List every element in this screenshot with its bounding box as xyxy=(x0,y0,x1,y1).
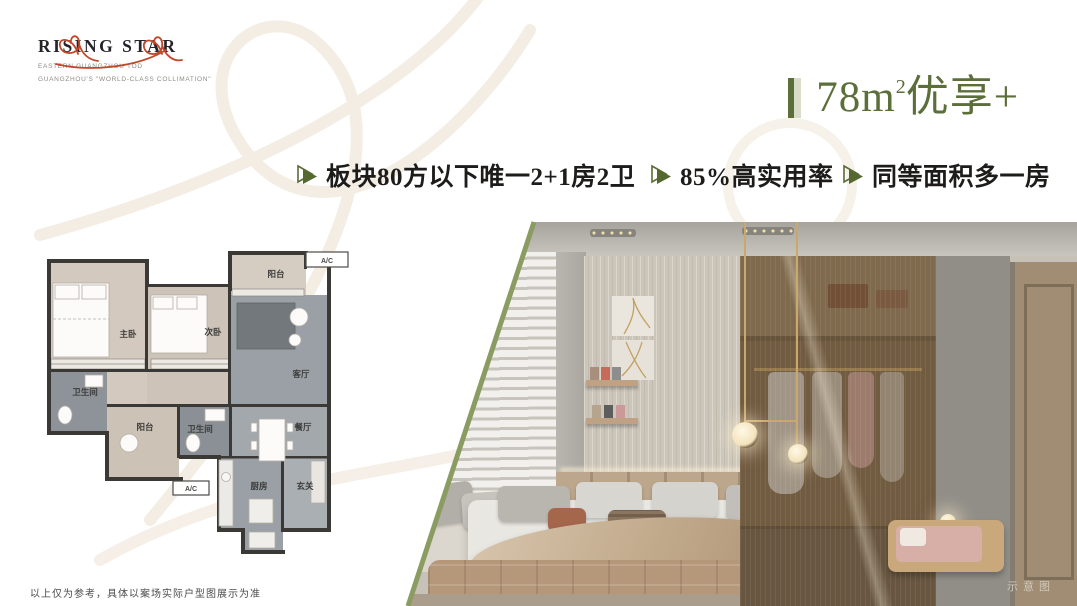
crib-pillow xyxy=(900,528,926,546)
ac-box-bottom-label: A/C xyxy=(185,486,197,493)
disclaimer-text: 以上仅为参考，具体以案场实际户型图展示为准 xyxy=(30,585,261,600)
book xyxy=(592,405,601,418)
headline-suffix: 优享+ xyxy=(906,74,1019,121)
brand-logo-title: RISING STAR xyxy=(38,36,258,57)
brand-logo-subtitle-2: GUANGZHOU'S "WORLD-CLASS COLLIMATION" xyxy=(38,76,258,83)
chevron-right-icon xyxy=(843,163,865,187)
chevron-right-icon xyxy=(297,163,319,187)
headline: 78m2优享+ xyxy=(788,76,1019,119)
book xyxy=(616,405,625,418)
photo-caption: 示意图 xyxy=(1007,578,1055,594)
room-label-balcony-top: 阳台 xyxy=(267,269,285,279)
headline-area-sup: 2 xyxy=(896,76,906,98)
bullet-label: 同等面积多一房 xyxy=(872,157,1051,193)
book xyxy=(601,367,610,380)
bullet-item-extra-room: 同等面积多一房 xyxy=(843,157,1051,193)
pendant-arm-icon xyxy=(744,420,798,422)
wall-shelf xyxy=(586,418,638,424)
floorplan-balcony-bottom-floor xyxy=(107,406,179,478)
room-label-dining: 餐厅 xyxy=(293,422,312,432)
room-label-living: 客厅 xyxy=(291,369,310,379)
room-label-bath-left: 卫生间 xyxy=(72,387,98,397)
room-label-balcony-bottom: 阳台 xyxy=(136,422,154,432)
headline-text: 78m2优享+ xyxy=(816,76,1019,119)
bullet-item-unique-layout: 板块80方以下唯一2+1房2卫 xyxy=(297,157,635,193)
room-label-master: 主卧 xyxy=(119,329,137,339)
room-label-second: 次卧 xyxy=(204,327,222,337)
floorplan-drawing: A/C A/C 主卧 次卧 阳台 客厅 餐厅 卫生间 阳台 卫生间 厨房 玄关 xyxy=(43,247,358,569)
room-label-kitchen: 厨房 xyxy=(250,481,267,491)
headline-area-value: 78m xyxy=(816,74,895,121)
bullet-label: 板块80方以下唯一2+1房2卫 xyxy=(326,157,635,193)
door-inset-panel xyxy=(1024,284,1074,580)
room-label-foyer: 玄关 xyxy=(296,481,314,491)
ceiling-spotlights-icon xyxy=(742,227,794,235)
book xyxy=(604,405,613,418)
room-label-bath-mid: 卫生间 xyxy=(187,424,213,434)
book xyxy=(590,367,599,380)
pendant-rod-icon xyxy=(796,222,798,446)
bullet-item-utilization: 85%高实用率 xyxy=(651,157,834,193)
pendant-globe-light xyxy=(788,444,808,464)
slide-canvas: RISING STAR EASTERN GUANGZHOU TOD GUANGZ… xyxy=(0,0,1077,606)
headline-accent-bar xyxy=(788,78,801,118)
brand-logo: RISING STAR EASTERN GUANGZHOU TOD GUANGZ… xyxy=(38,36,258,83)
chevron-right-icon xyxy=(651,163,673,187)
pendant-globe-light xyxy=(732,422,758,448)
wall-shelf xyxy=(586,380,638,386)
ceiling-spotlights-icon xyxy=(590,229,636,237)
ac-box-top-label: A/C xyxy=(321,258,333,265)
brand-logo-subtitle-1: EASTERN GUANGZHOU TOD xyxy=(38,63,258,70)
pendant-rod-icon xyxy=(744,222,746,422)
book xyxy=(612,367,621,380)
bullet-label: 85%高实用率 xyxy=(680,157,834,193)
